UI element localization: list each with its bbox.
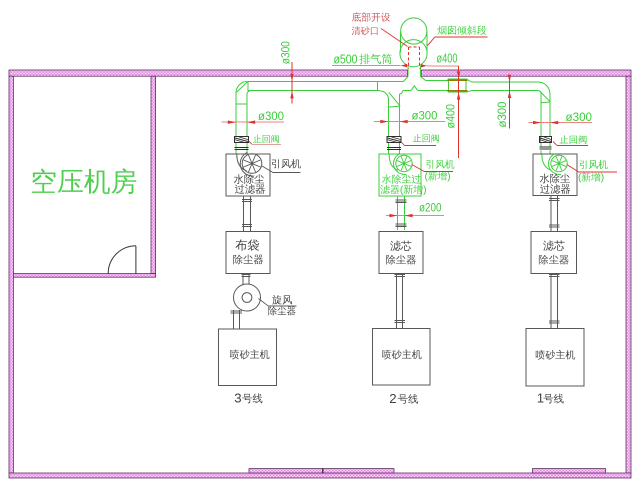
svg-text:ø300: ø300 xyxy=(279,41,293,64)
svg-text:3: 3 xyxy=(234,390,241,405)
svg-text:(: ( xyxy=(425,171,429,182)
svg-text:2: 2 xyxy=(389,391,396,406)
svg-text:(: ( xyxy=(400,185,404,196)
svg-text:): ) xyxy=(447,171,450,182)
svg-text:ø300: ø300 xyxy=(412,108,438,122)
svg-text:ø400: ø400 xyxy=(443,104,457,129)
svg-text:ø300: ø300 xyxy=(495,101,509,127)
svg-text:): ) xyxy=(601,173,604,184)
svg-text:1: 1 xyxy=(537,390,544,405)
svg-text:ø500: ø500 xyxy=(334,52,358,66)
svg-text:(: ( xyxy=(578,173,582,184)
svg-text:ø400: ø400 xyxy=(437,51,458,65)
svg-text:ø300: ø300 xyxy=(566,110,593,124)
svg-text:ø200: ø200 xyxy=(419,201,442,215)
svg-text:): ) xyxy=(423,185,426,196)
svg-text:ø300: ø300 xyxy=(258,109,284,123)
